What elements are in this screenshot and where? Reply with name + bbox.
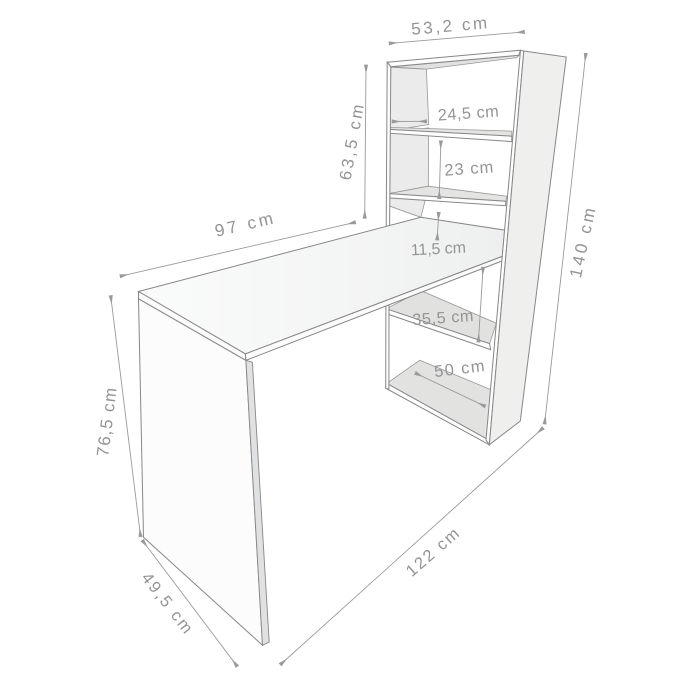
svg-text:49,5 cm: 49,5 cm bbox=[138, 569, 198, 638]
svg-text:97 cm: 97 cm bbox=[213, 207, 278, 240]
svg-text:11,5 cm: 11,5 cm bbox=[410, 240, 466, 260]
svg-text:122 cm: 122 cm bbox=[403, 524, 465, 581]
svg-text:63,5 cm: 63,5 cm bbox=[336, 100, 368, 181]
svg-text:76,5 cm: 76,5 cm bbox=[93, 385, 120, 457]
svg-text:53,2 cm: 53,2 cm bbox=[410, 13, 490, 39]
svg-text:140 cm: 140 cm bbox=[566, 203, 600, 279]
svg-text:23 cm: 23 cm bbox=[444, 158, 495, 179]
